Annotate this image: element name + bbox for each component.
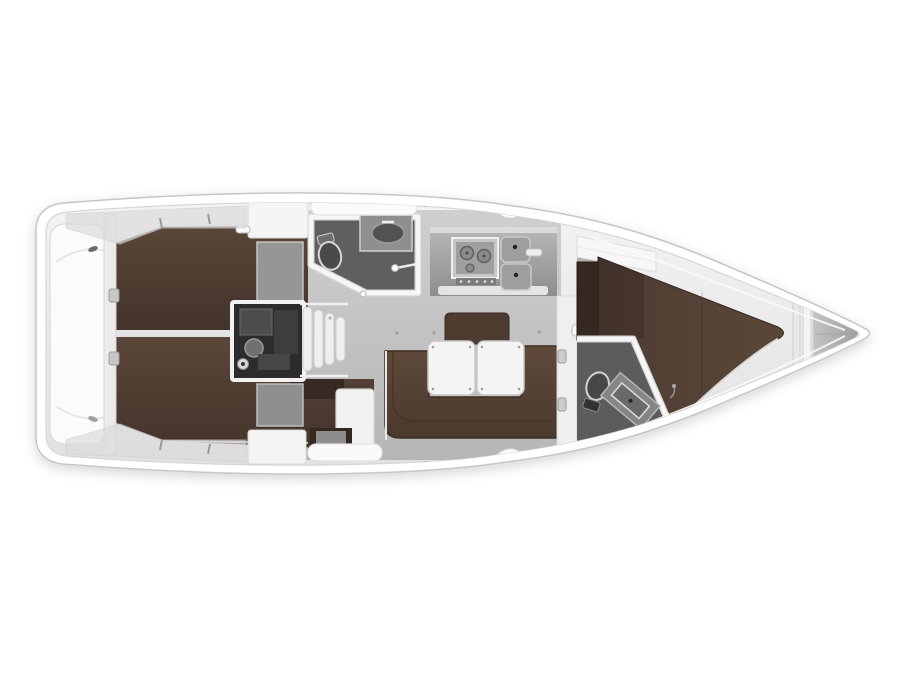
sink-drain-lower — [514, 273, 518, 277]
shower-head — [392, 265, 399, 272]
sink-drain-upper — [513, 245, 517, 249]
yacht-floor-plan: Top-down interior floor plan of a sailin… — [0, 0, 900, 675]
bulkhead-wall — [557, 296, 577, 458]
anchor-locker — [793, 296, 858, 372]
door-hinge-upper — [558, 350, 566, 363]
engine-block — [240, 309, 272, 335]
table-leaf-right — [477, 341, 524, 395]
bench-backrest — [445, 313, 509, 344]
galley-top-trim — [430, 227, 557, 233]
step-1 — [303, 307, 312, 371]
engine-pan — [258, 354, 290, 370]
burner-2-center — [483, 255, 486, 258]
engine-filter-cap — [241, 362, 245, 366]
aft-head-basin — [372, 223, 404, 243]
engine-compartment — [232, 302, 304, 380]
nav-hatch-panel — [308, 444, 382, 461]
step-2 — [314, 310, 323, 368]
swim-platform — [50, 224, 106, 444]
step-3 — [325, 313, 334, 365]
aft-locker-starboard — [257, 384, 303, 426]
yacht-floorplan-stage: Top-down interior floor plan of a sailin… — [0, 0, 900, 675]
galley — [430, 227, 557, 296]
aft-cabinet-port — [248, 198, 308, 238]
engine-manifold — [274, 310, 298, 354]
step-4 — [336, 317, 345, 361]
transom-seat-panel — [50, 224, 106, 444]
forward-wardrobe — [577, 262, 599, 340]
table-leaf-left — [428, 341, 475, 395]
aft-cabinet-starboard — [248, 430, 306, 464]
burner-1-center — [466, 252, 469, 255]
transom-hinge-upper — [109, 289, 119, 302]
transom-hinge-lower — [109, 352, 119, 365]
galley-front-trim — [438, 286, 548, 295]
aft-head-door-knob — [360, 291, 366, 297]
nav-console-screen — [316, 431, 346, 444]
centerline-strip — [116, 330, 236, 337]
aft-locker-port — [257, 242, 303, 302]
galley-faucet — [526, 249, 542, 256]
halyard-hook-eye — [672, 384, 676, 388]
door-hinge-lower — [558, 398, 566, 411]
burner-3 — [466, 264, 474, 272]
transom-wall — [104, 214, 116, 454]
sink-upper — [501, 237, 530, 262]
